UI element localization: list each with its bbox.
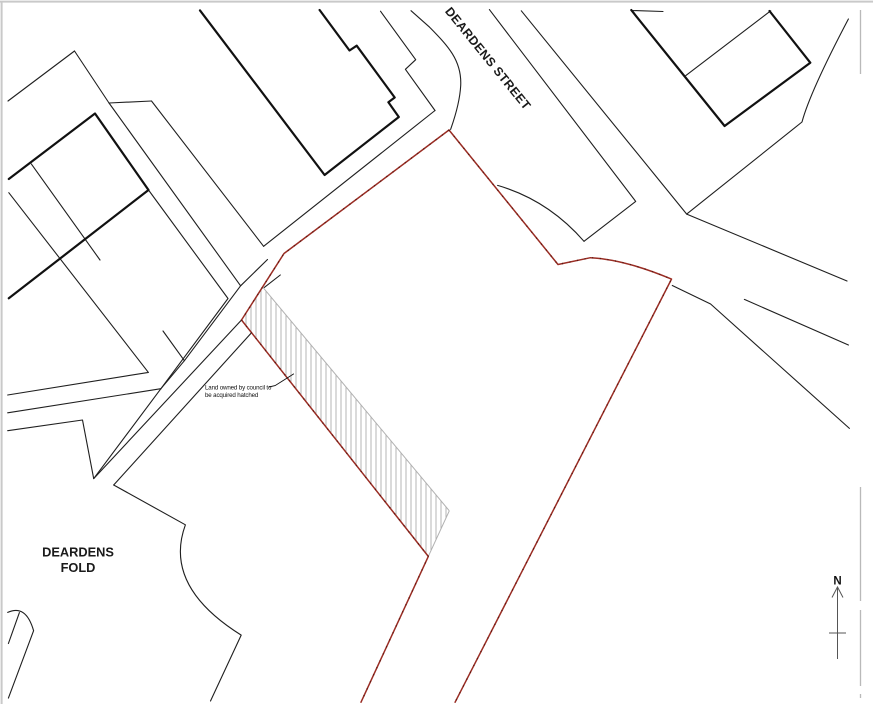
svg-text:Land owned by council to: Land owned by council to (205, 384, 272, 391)
svg-text:DEARDENS: DEARDENS (42, 545, 114, 560)
svg-text:be acquired hatched: be acquired hatched (205, 392, 259, 399)
svg-text:N: N (833, 576, 841, 588)
svg-text:FOLD: FOLD (61, 560, 96, 575)
